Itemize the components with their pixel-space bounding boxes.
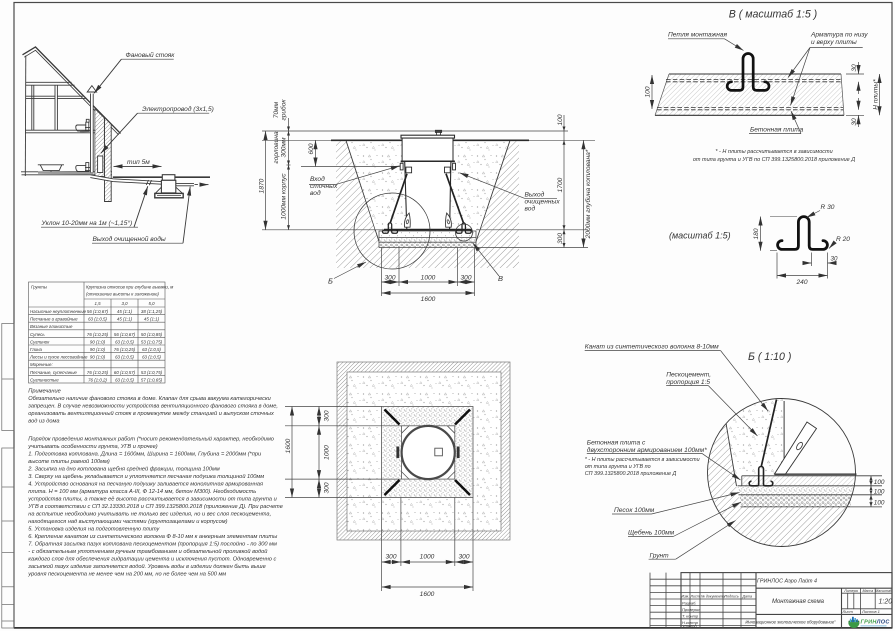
- svg-text:Примечание: Примечание: [28, 389, 60, 395]
- svg-text:76 (1:0,2): 76 (1:0,2): [88, 377, 107, 382]
- svg-text:Арматура по низу: Арматура по низу: [810, 32, 868, 39]
- svg-text:от типа грунта и УГВ по: от типа грунта и УГВ по: [585, 464, 651, 470]
- svg-text:Грунты: Грунты: [31, 285, 48, 290]
- svg-text:1600: 1600: [285, 438, 292, 453]
- svg-text:100: 100: [557, 114, 564, 125]
- svg-text:3,0: 3,0: [121, 301, 128, 306]
- svg-text:300: 300: [557, 233, 564, 244]
- svg-text:Дата: Дата: [742, 595, 752, 599]
- svg-text:Б ( 1:10 ): Б ( 1:10 ): [748, 351, 791, 363]
- svg-text:53 (1:0,75): 53 (1:0,75): [141, 339, 163, 344]
- svg-text:60 (1:0,57): 60 (1:0,57): [114, 370, 136, 375]
- svg-text:300: 300: [458, 554, 469, 561]
- svg-text:76 (1:0,25): 76 (1:0,25): [87, 370, 109, 375]
- svg-text:90 (1:0): 90 (1:0): [90, 347, 106, 352]
- svg-text:Петля монтажная: Петля монтажная: [668, 32, 728, 39]
- svg-text:76 (1:0,25): 76 (1:0,25): [87, 332, 109, 337]
- svg-text:Утверд.: Утверд.: [682, 624, 698, 629]
- svg-text:Вход: Вход: [310, 175, 325, 183]
- svg-text:высоте плиты равной 100мм): высоте плиты равной 100мм): [28, 458, 110, 465]
- svg-text:УГВ в соответствии с СП 32.133: УГВ в соответствии с СП 32.13330.2018 и …: [27, 504, 283, 510]
- svg-text:45 (1:1): 45 (1:1): [144, 317, 160, 322]
- svg-text:на всплытие необходимо учитыв: на всплытие необходимо учитывать не толь…: [28, 512, 271, 518]
- svg-text:100: 100: [645, 86, 652, 97]
- svg-text:Литера: Литера: [843, 589, 857, 593]
- svg-text:вод: вод: [525, 205, 536, 213]
- svg-text:Суглинок: Суглинок: [30, 339, 50, 344]
- svg-text:56 (1:0,67): 56 (1:0,67): [87, 309, 109, 314]
- svg-text:63 (1:0,5): 63 (1:0,5): [142, 347, 161, 352]
- svg-text:63 (1:0,5): 63 (1:0,5): [88, 317, 107, 322]
- svg-text:Крутизна откосов при глубине в: Крутизна откосов при глубине выемки, м: [86, 285, 173, 290]
- svg-text:сточных: сточных: [310, 183, 338, 190]
- svg-text:Инновационное экологическое об: Инновационное экологическое оборудование…: [745, 620, 836, 625]
- svg-text:45 (1:1): 45 (1:1): [117, 317, 133, 322]
- svg-text:Н плиты*: Н плиты*: [873, 79, 880, 110]
- svg-text:30: 30: [851, 64, 858, 72]
- svg-text:организовать вентиляционный ст: организовать вентиляционный стояк в пром…: [28, 410, 274, 417]
- svg-text:от типа грунта и УГВ по СП 399: от типа грунта и УГВ по СП 399.1325800.2…: [693, 157, 855, 163]
- svg-text:Суглинистые: Суглинистые: [30, 377, 59, 382]
- svg-text:Бетонная плита: Бетонная плита: [750, 127, 804, 134]
- svg-text:1000: 1000: [420, 554, 435, 561]
- svg-text:тип 5м: тип 5м: [127, 159, 150, 166]
- svg-text:* - Н плиты рассчитывается в з: * - Н плиты рассчитывается в зависимости: [715, 149, 832, 155]
- svg-text:(масштаб 1:5): (масштаб 1:5): [669, 231, 731, 241]
- svg-text:300: 300: [324, 410, 331, 421]
- svg-text:63 (1:0,5): 63 (1:0,5): [115, 355, 134, 360]
- svg-text:Моренные:: Моренные:: [30, 362, 53, 367]
- svg-text:1700: 1700: [557, 177, 564, 192]
- svg-text:Электропровод (3х1,5): Электропровод (3х1,5): [142, 105, 214, 113]
- svg-text:4. Устройство основания на пес: 4. Устройство основания на песчаную поду…: [28, 481, 263, 488]
- svg-text:1000: 1000: [324, 445, 331, 460]
- svg-text:Щебень 100мм: Щебень 100мм: [628, 529, 675, 537]
- svg-text:100: 100: [874, 489, 885, 496]
- svg-text:56 (1:0,67): 56 (1:0,67): [114, 332, 136, 337]
- svg-text:Масса: Масса: [862, 589, 873, 593]
- svg-text:Выход очищенной воды: Выход очищенной воды: [93, 235, 166, 243]
- svg-text:1:20: 1:20: [878, 598, 892, 605]
- svg-text:70мм: 70мм: [273, 101, 280, 118]
- svg-text:каждого слоя для обеспечения г: каждого слоя для обеспечения гидратации …: [28, 557, 276, 563]
- svg-text:180: 180: [753, 228, 760, 239]
- svg-text:76 (1:0,25): 76 (1:0,25): [114, 347, 136, 352]
- svg-text:Уклон 10-20мм на 1м (~1,15°): Уклон 10-20мм на 1м (~1,15°): [41, 219, 133, 227]
- svg-text:63 (1:0,5): 63 (1:0,5): [115, 377, 134, 382]
- svg-text:Обязательно наличие фанового с: Обязательно наличие фанового стояка в до…: [28, 396, 271, 402]
- svg-text:300мм: 300мм: [281, 137, 288, 158]
- svg-text:Б: Б: [328, 277, 333, 286]
- svg-text:300: 300: [384, 275, 395, 282]
- svg-text:уровня пескоцемента не менее ч: уровня пескоцемента не менее чем на 200 …: [27, 572, 226, 578]
- svg-text:Лист: Лист: [842, 609, 854, 614]
- svg-text:(отношение высоты к заложению): (отношение высоты к заложению): [86, 292, 159, 297]
- svg-text:Выход: Выход: [525, 191, 545, 199]
- svg-text:100: 100: [874, 500, 885, 507]
- svg-text:грибок: грибок: [280, 99, 288, 121]
- svg-text:Вязаные глинистые: Вязаные глинистые: [30, 324, 73, 329]
- svg-text:1,5: 1,5: [94, 301, 101, 306]
- svg-text:30: 30: [851, 118, 858, 126]
- svg-text:90 (1:0): 90 (1:0): [90, 339, 106, 344]
- svg-text:Подпись: Подпись: [725, 595, 739, 599]
- svg-text:3. Сверху на щебень укладывает: 3. Сверху на щебень укладывается и уплот…: [28, 473, 264, 480]
- svg-text:600: 600: [308, 143, 315, 154]
- svg-text:ГРИНЛОС Аэро Лайт 4: ГРИНЛОС Аэро Лайт 4: [757, 578, 817, 585]
- svg-text:Бетонная плита с: Бетонная плита с: [587, 440, 646, 447]
- svg-text:двухсторонним армированием 100: двухсторонним армированием 100мм*: [587, 446, 707, 454]
- svg-text:53 (1:0,75): 53 (1:0,75): [141, 370, 163, 375]
- svg-text:Песок 100мм: Песок 100мм: [614, 507, 655, 514]
- svg-text:ГРИНЛОС: ГРИНЛОС: [861, 620, 891, 626]
- svg-text:1600: 1600: [421, 296, 436, 303]
- svg-text:57 (1:0,65): 57 (1:0,65): [141, 377, 163, 382]
- svg-text:Изм.: Изм.: [682, 595, 690, 599]
- svg-text:38 (1:1,25): 38 (1:1,25): [141, 309, 163, 314]
- svg-text:Лист: Лист: [690, 595, 700, 599]
- svg-text:пропорция 1:5: пропорция 1:5: [666, 379, 710, 386]
- svg-text:Насыпные неуплотненные: Насыпные неуплотненные: [30, 309, 87, 314]
- svg-text:учитывать особенности грунта,: учитывать особенности грунта, УГВ и проч…: [27, 444, 157, 450]
- svg-text:300: 300: [385, 554, 396, 561]
- svg-text:плита. Н = 100 мм (арматура кл: плита. Н = 100 мм (арматура класса А-III…: [28, 489, 256, 495]
- svg-text:находящегося над выступающими: находящегося над выступающими частями (г…: [28, 519, 227, 525]
- svg-text:5. Установка изделия на подгот: 5. Установка изделия на подготовленную п…: [28, 527, 160, 533]
- svg-text:запрещен. В случае невозможнос: запрещен. В случае невозможности устройс…: [27, 403, 278, 410]
- svg-text:Грунт: Грунт: [650, 552, 670, 559]
- svg-text:В: В: [498, 274, 503, 283]
- svg-text:Песчаные, супесчаные: Песчаные, супесчаные: [30, 370, 77, 375]
- svg-text:СП 399.1325800.2018 приложение: СП 399.1325800.2018 приложение Д: [585, 471, 677, 477]
- svg-text:Песчаные и гравийные: Песчаные и гравийные: [30, 317, 78, 322]
- svg-text:90 (1:0): 90 (1:0): [90, 355, 106, 360]
- svg-text:* - Н плиты рассчитывается в з: * - Н плиты рассчитывается в зависимости: [585, 457, 700, 463]
- svg-text:- с обязательным уплотнением р: - с обязательным уплотнением ручным трам…: [28, 548, 268, 555]
- svg-text:и верху плиты: и верху плиты: [811, 39, 857, 46]
- svg-text:очищенных: очищенных: [525, 199, 561, 206]
- svg-text:Глина: Глина: [30, 347, 43, 352]
- svg-text:2000мм глубина котлована*: 2000мм глубина котлована*: [584, 149, 592, 239]
- svg-text:1. Подготовка котлована. Длина: 1. Подготовка котлована. Длина = 1600мм,…: [28, 452, 262, 458]
- svg-text:Канат из синтетического волокн: Канат из синтетического волокна 8-10мм: [585, 344, 719, 351]
- svg-text:300: 300: [460, 275, 471, 282]
- svg-text:засыпкой пазух изделие заполня: засыпкой пазух изделие заполняется водой…: [27, 563, 265, 570]
- svg-text:2. Засыпка на дно котлована ще: 2. Засыпка на дно котлована щебня средне…: [27, 466, 220, 473]
- svg-text:горловина: горловина: [273, 131, 280, 163]
- svg-text:5,0: 5,0: [148, 301, 155, 306]
- svg-text:Разраб.: Разраб.: [682, 600, 696, 605]
- svg-text:Фановый стояк: Фановый стояк: [126, 51, 176, 59]
- svg-text:30: 30: [831, 256, 838, 263]
- svg-text:1000: 1000: [421, 275, 436, 282]
- svg-text:R 20: R 20: [836, 236, 850, 243]
- svg-text:R 30: R 30: [821, 204, 835, 211]
- svg-text:6. Крепление канатом из синтет: 6. Крепление канатом из синтетического в…: [28, 534, 278, 540]
- svg-text:1000мм корпус: 1000мм корпус: [281, 173, 288, 220]
- svg-text:Пескоцемент,: Пескоцемент,: [666, 372, 711, 379]
- svg-text:Проверил: Проверил: [682, 607, 701, 612]
- svg-text:Масштаб: Масштаб: [875, 589, 893, 593]
- svg-text:240: 240: [795, 279, 807, 286]
- svg-text:Лессы и сухое лессовидные: Лессы и сухое лессовидные: [29, 355, 88, 360]
- svg-text:устройства плиты, а также её в: устройства плиты, а также её высота расс…: [27, 496, 277, 503]
- svg-text:1870: 1870: [259, 178, 266, 193]
- svg-text:50 (1:0,85): 50 (1:0,85): [141, 332, 163, 337]
- svg-text:63 (1:0,5): 63 (1:0,5): [142, 355, 161, 360]
- svg-text:45 (1:1): 45 (1:1): [117, 309, 133, 314]
- svg-text:7. Обратная засыпка пазух котл: 7. Обратная засыпка пазух котлована песк…: [28, 541, 277, 548]
- svg-text:Т. контр: Т. контр: [682, 614, 699, 619]
- svg-text:вод из дома: вод из дома: [28, 419, 59, 425]
- svg-text:100: 100: [874, 479, 885, 486]
- svg-text:В ( масштаб 1:5 ): В ( масштаб 1:5 ): [729, 9, 817, 21]
- svg-text:Листов 1: Листов 1: [861, 609, 880, 614]
- svg-text:1600: 1600: [420, 591, 435, 598]
- svg-text:№ документа: № документа: [701, 595, 725, 599]
- svg-text:Супесь: Супесь: [30, 332, 45, 337]
- svg-text:Монтажная схема: Монтажная схема: [772, 599, 825, 605]
- svg-text:63 (1:0,5): 63 (1:0,5): [115, 339, 134, 344]
- svg-text:вод: вод: [310, 189, 321, 197]
- svg-text:300: 300: [324, 482, 331, 493]
- svg-text:Порядок проведения монтажных р: Порядок проведения монтажных работ (*нос…: [28, 436, 274, 443]
